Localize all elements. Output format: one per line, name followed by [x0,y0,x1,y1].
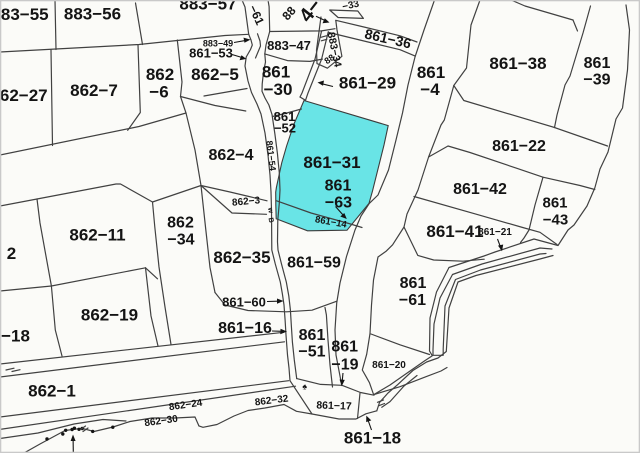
svg-text:−63: −63 [325,195,352,212]
svg-text:−19: −19 [331,357,358,374]
svg-text:861−59: 861−59 [287,255,341,272]
svg-text:862−19: 862−19 [81,306,138,325]
svg-text:861: 861 [331,339,358,356]
svg-text:862−27: 862−27 [0,86,48,105]
svg-text:862−4: 862−4 [209,147,254,164]
svg-text:861−21: 861−21 [478,227,512,238]
svg-text:862−5: 862−5 [191,65,239,84]
svg-text:883−57: 883−57 [179,0,236,14]
svg-text:−4: −4 [420,80,440,99]
svg-text:861: 861 [584,55,611,72]
svg-text:861−16: 861−16 [218,320,272,337]
svg-text:861: 861 [400,275,427,292]
svg-text:−18: −18 [1,327,30,346]
svg-text:−6: −6 [149,83,168,102]
svg-text:883−56: 883−56 [64,5,121,24]
svg-text:861: 861 [262,63,290,82]
svg-text:−30: −30 [264,80,293,99]
svg-text:862−11: 862−11 [69,226,125,245]
svg-text:−52: −52 [274,121,296,136]
svg-text:862−7: 862−7 [70,81,118,100]
svg-text:861−53: 861−53 [189,46,233,61]
svg-text:−43: −43 [543,212,568,229]
svg-text:861−18: 861−18 [344,429,401,448]
svg-text:−51: −51 [298,344,325,361]
svg-text:861−60: 861−60 [222,295,266,310]
svg-text:883−55: 883−55 [0,5,49,24]
svg-text:861−20: 861−20 [372,360,406,371]
svg-text:861: 861 [325,178,352,195]
svg-text:862: 862 [146,65,174,84]
svg-text:861−22: 861−22 [492,138,546,155]
svg-text:862−1: 862−1 [28,382,76,401]
svg-text:861−38: 861−38 [489,54,546,73]
svg-text:−39: −39 [583,72,610,89]
svg-text:−61: −61 [399,292,426,309]
svg-text:2: 2 [7,244,16,263]
svg-text:861: 861 [299,327,326,344]
svg-text:883−47: 883−47 [267,38,311,53]
svg-text:861−17: 861−17 [316,399,352,412]
svg-text:862: 862 [167,215,194,232]
svg-text:−34: −34 [167,232,194,249]
svg-text:861−29: 861−29 [339,74,396,93]
svg-text:861−41: 861−41 [426,222,483,241]
svg-text:861−31: 861−31 [303,153,360,172]
svg-text:862−35: 862−35 [213,248,270,267]
svg-text:861−42: 861−42 [453,181,507,198]
svg-text:861: 861 [542,195,567,212]
